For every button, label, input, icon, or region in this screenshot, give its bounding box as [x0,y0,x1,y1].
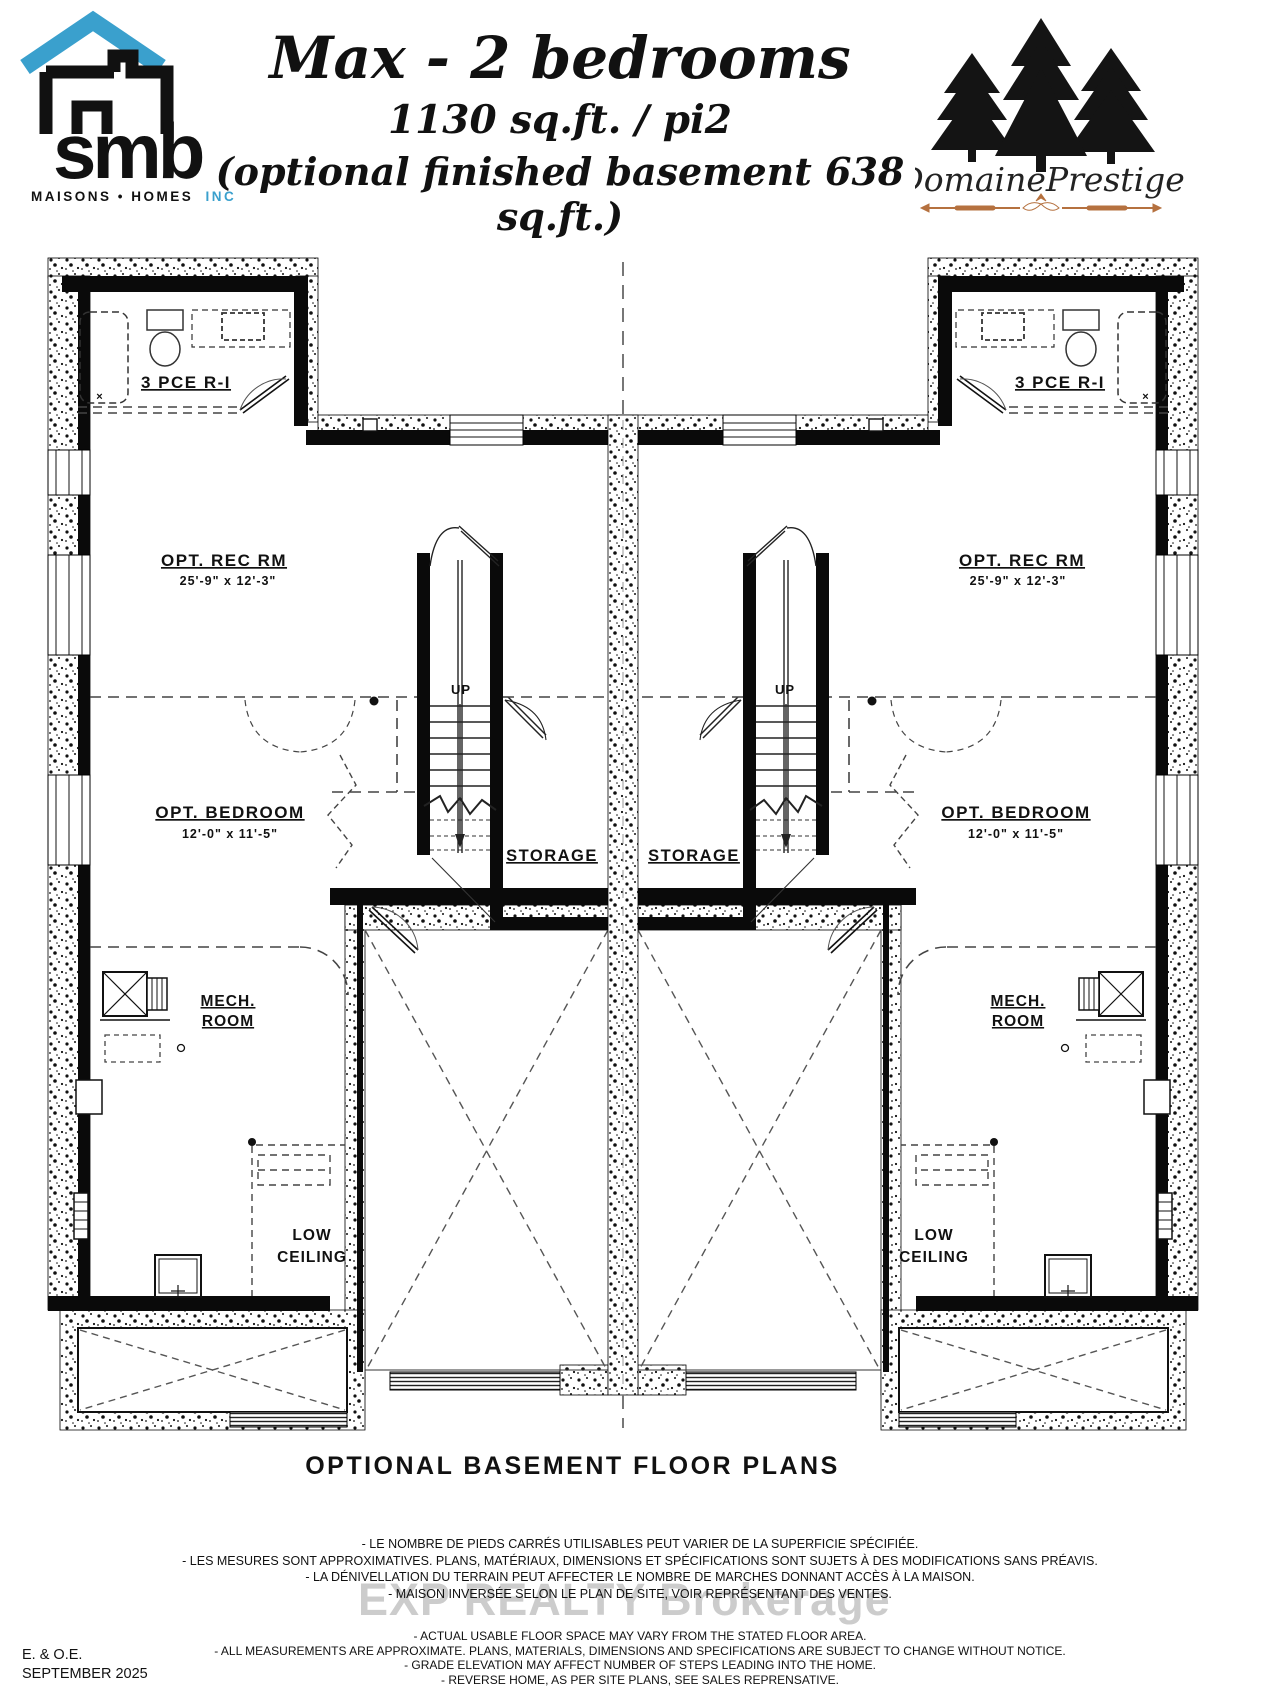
footer-corner: E. & O.E. SEPTEMBER 2025 [22,1646,148,1684]
header-titles: Max - 2 bedrooms 1130 sq.ft. / pi2 (opti… [180,28,940,239]
disclaimer-en-line4: - REVERSE HOME, AS PER SITE PLANS, SEE S… [0,1673,1280,1688]
page-subtitle-basement: (optional finished basement 638 sq.ft.) [180,149,940,239]
label-bathroom-left: 3 PCE R-I [141,373,231,392]
plan-title: OPTIONAL BASEMENT FLOOR PLANS [0,1452,1145,1481]
label-rec-room-left: OPT. REC RM [161,551,287,570]
label-low2-right: CEILING [899,1249,969,1266]
label-up-left: UP [451,682,471,697]
label-mech1-right: MECH. [991,993,1046,1010]
basement-floor-plan: 3 PCE R-I × OPT. REC RM 25'-9" x 12'-3" … [0,250,1280,1450]
label-tub-mark-right: × [1142,391,1149,403]
label-rec-room-right: OPT. REC RM [959,551,1085,570]
disclaimer-fr-line2: - LES MESURES SONT APPROXIMATIVES. PLANS… [0,1553,1280,1570]
label-mech2-left: ROOM [202,1013,254,1030]
domaine-prestige-logo: DomainePrestige [915,8,1185,223]
label-low1-left: LOW [292,1227,331,1244]
label-tub-mark-left: × [96,391,103,403]
page-subtitle-area: 1130 sq.ft. / pi2 [180,97,940,143]
label-bathroom-right: 3 PCE R-I [1015,373,1105,392]
smb-tagline: MAISONS • HOMES [31,189,193,204]
plan-date: SEPTEMBER 2025 [22,1665,148,1684]
domaine-prestige-wordmark: DomainePrestige [915,160,1185,199]
disclaimer-fr-line3: - LA DÉNIVELLATION DU TERRAIN PEUT AFFEC… [0,1569,1280,1586]
label-storage-left: STORAGE [506,847,598,865]
disclaimer-en-line1: - ACTUAL USABLE FLOOR SPACE MAY VARY FRO… [0,1629,1280,1644]
disclaimer-english: - ACTUAL USABLE FLOOR SPACE MAY VARY FRO… [0,1629,1280,1687]
label-mech1-left: MECH. [201,993,256,1010]
label-bedroom-dims-left: 12'-0" x 11'-5" [182,827,278,841]
label-rec-room-dims-right: 25'-9" x 12'-3" [970,574,1067,588]
label-up-right: UP [775,682,795,697]
disclaimer-en-line2: - ALL MEASUREMENTS ARE APPROXIMATE. PLAN… [0,1644,1280,1659]
eoe-note: E. & O.E. [22,1646,148,1665]
smb-roof-icon [25,21,161,67]
page-title: Max - 2 bedrooms [180,28,940,89]
label-mech2-right: ROOM [992,1013,1044,1030]
label-low1-right: LOW [914,1227,953,1244]
label-low2-left: CEILING [277,1249,347,1266]
label-rec-room-dims-left: 25'-9" x 12'-3" [180,574,277,588]
pine-trees-icon [931,18,1155,172]
party-wall [608,262,638,1428]
label-bedroom-left: OPT. BEDROOM [155,803,304,822]
disclaimer-fr-line4: - MAISON INVERSÉE SELON LE PLAN DE SITE,… [0,1586,1280,1603]
label-bedroom-dims-right: 12'-0" x 11'-5" [968,827,1064,841]
disclaimer-fr-line1: - LE NOMBRE DE PIEDS CARRÉS UTILISABLES … [0,1536,1280,1553]
label-bedroom-right: OPT. BEDROOM [941,803,1090,822]
label-storage-right: STORAGE [648,847,740,865]
disclaimer-french: - LE NOMBRE DE PIEDS CARRÉS UTILISABLES … [0,1536,1280,1602]
disclaimer-en-line3: - GRADE ELEVATION MAY AFFECT NUMBER OF S… [0,1658,1280,1673]
